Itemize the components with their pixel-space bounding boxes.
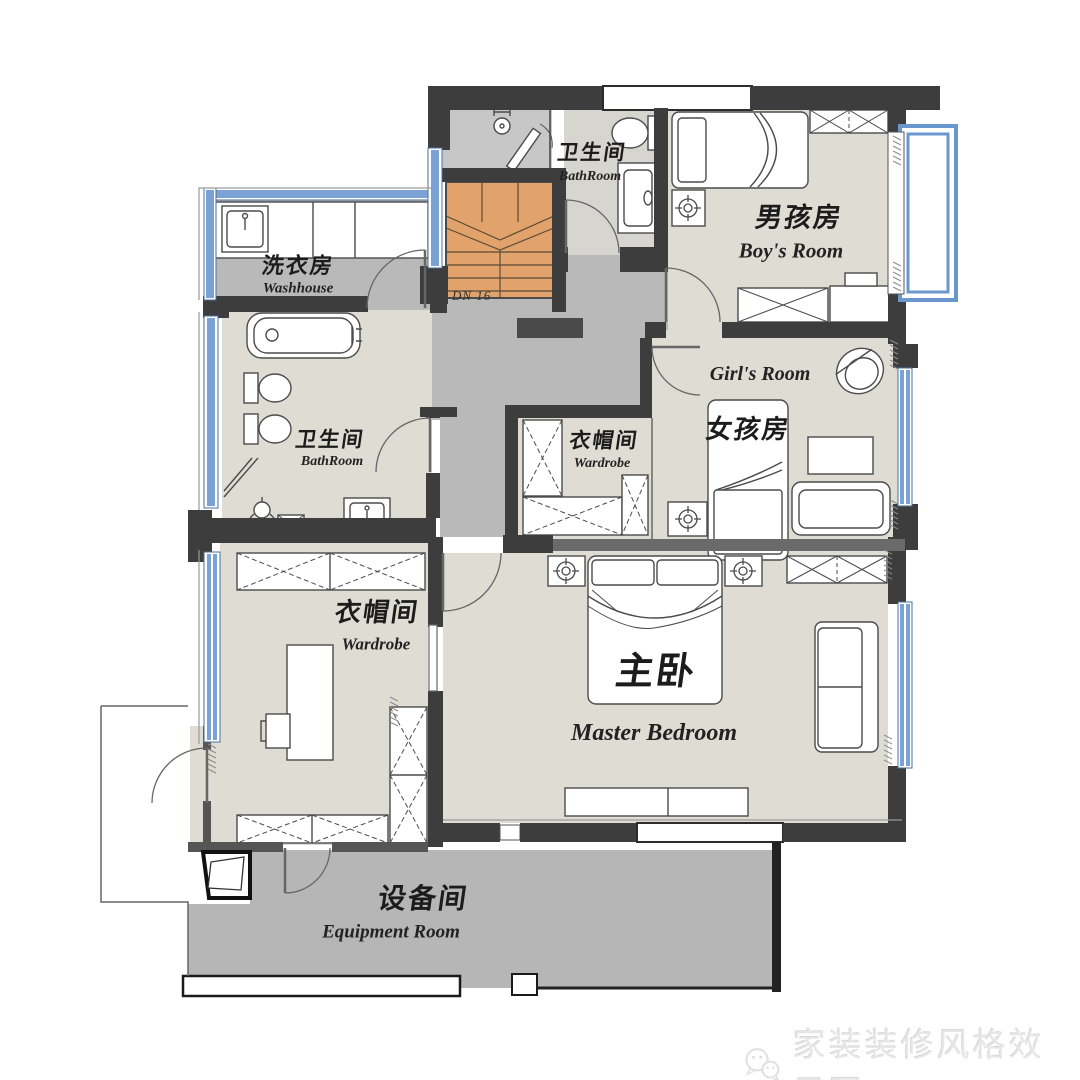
toilet xyxy=(244,373,291,403)
laundry-counter xyxy=(215,202,428,258)
master-bedroom-label-en: Master Bedroom xyxy=(571,721,737,745)
corridor-floor xyxy=(440,416,506,538)
equipment-room-label-cn: 设备间 xyxy=(376,886,470,914)
watermark: 家装装修风格效果图 xyxy=(742,1018,1080,1080)
door-wardrobe-left-sliding xyxy=(429,625,437,691)
window xyxy=(428,148,442,268)
boys-bed xyxy=(672,112,808,188)
master-sofa xyxy=(815,622,878,752)
girls-room-label-en: Girl's Room xyxy=(710,364,811,384)
stairs-direction-note: DN 16 xyxy=(452,288,491,304)
wechat-icon xyxy=(742,1044,785,1080)
bathtub xyxy=(247,313,362,358)
wardrobe-left-label-en: Wardrobe xyxy=(342,636,411,653)
bathroom-left-label-en: BathRoom xyxy=(301,455,363,469)
girls-room-label-cn: 女孩房 xyxy=(704,417,792,443)
boys-wardrobe xyxy=(810,110,888,133)
toilet xyxy=(244,414,291,444)
wardrobe-mid-label-en: Wardrobe xyxy=(574,457,631,471)
window xyxy=(204,316,218,508)
wardrobe-mid-label-cn: 衣帽间 xyxy=(568,431,640,452)
tv-cabinet xyxy=(565,788,748,816)
hatch-box xyxy=(203,852,250,898)
girls-bench xyxy=(792,482,890,535)
bathroom-left-label-cn: 卫生间 xyxy=(294,430,366,451)
girls-desk xyxy=(808,437,873,474)
terrace-outline xyxy=(101,706,188,976)
bathroom-top-label-cn: 卫生间 xyxy=(556,143,628,164)
bay-window xyxy=(888,126,956,300)
floor-plan-page: 洗衣房 Washhouse 卫生间 BathRoom 男孩房 Boy's Roo… xyxy=(0,0,1080,1080)
bathroom-vanity xyxy=(618,163,658,233)
washhouse-label-en: Washhouse xyxy=(263,282,334,297)
window xyxy=(204,552,220,742)
bathroom-top-label-en: BathRoom xyxy=(559,170,621,184)
boys-room-label-en: Boy's Room xyxy=(739,241,843,262)
equipment-room-floor xyxy=(250,850,775,988)
equipment-room-label-en: Equipment Room xyxy=(322,923,460,942)
master-wardrobe xyxy=(787,556,887,583)
equipment-bottom-wall xyxy=(183,976,460,996)
boys-room-label-cn: 男孩房 xyxy=(754,205,845,232)
wardrobe-left-label-cn: 衣帽间 xyxy=(333,600,421,626)
staircase xyxy=(446,182,554,298)
floor-plan-drawing xyxy=(0,0,1080,1080)
window xyxy=(898,368,912,506)
master-bedroom-label-cn: 主卧 xyxy=(613,653,698,691)
window xyxy=(898,602,912,768)
watermark-text: 家装装修风格效果图 xyxy=(793,1018,1080,1080)
washhouse-label-cn: 洗衣房 xyxy=(260,255,335,277)
